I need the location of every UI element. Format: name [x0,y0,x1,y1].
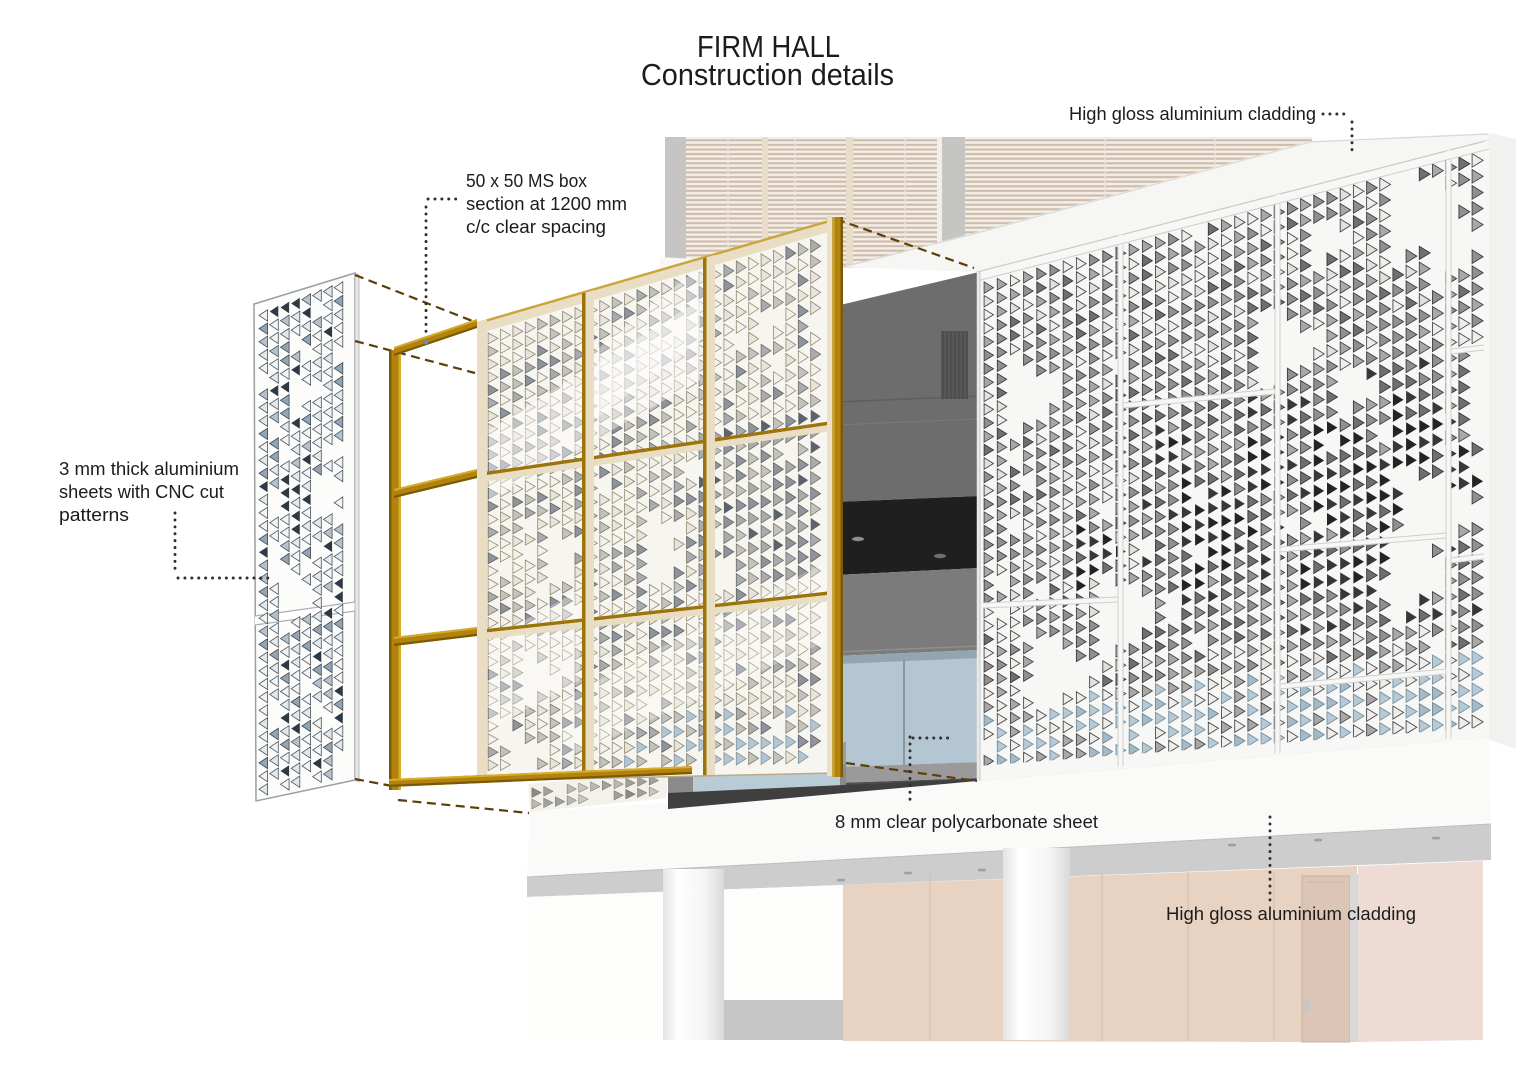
svg-text:Construction details: Construction details [641,58,894,92]
svg-text:High gloss aluminium cladding: High gloss aluminium cladding [1069,103,1316,124]
svg-text:50 x 50 MS box: 50 x 50 MS box [466,170,588,191]
svg-text:c/c clear spacing: c/c clear spacing [466,216,606,237]
svg-text:patterns: patterns [59,504,129,525]
svg-text:High gloss aluminium cladding: High gloss aluminium cladding [1166,903,1416,924]
svg-text:sheets with CNC cut: sheets with CNC cut [59,481,224,502]
svg-text:section at 1200 mm: section at 1200 mm [466,193,627,214]
svg-text:8 mm clear polycarbonate sheet: 8 mm clear polycarbonate sheet [835,811,1098,832]
svg-text:3 mm thick aluminium: 3 mm thick aluminium [59,458,239,479]
